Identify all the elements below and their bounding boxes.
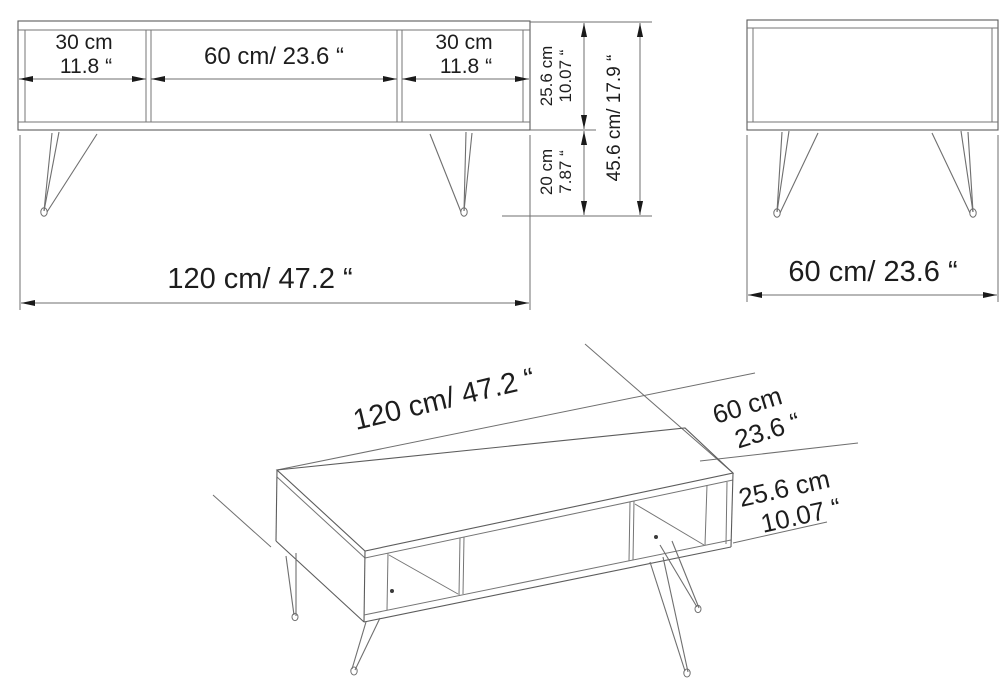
front-right-hairpin-leg xyxy=(430,132,472,216)
diagram-canvas: 30 cm 11.8 “ 60 cm/ 23.6 “ 30 cm 11.8 “ … xyxy=(0,0,1008,684)
iso-depth-label-group: 60 cm 23.6 “ xyxy=(709,378,804,459)
left-compartment-diagonal xyxy=(389,555,458,594)
dim-label-leg-height-in: 7.87 “ xyxy=(556,150,575,194)
side-carcass-outline xyxy=(747,20,998,130)
side-view: 60 cm/ 23.6 “ xyxy=(747,20,998,302)
furniture-dimension-diagram: 30 cm 11.8 “ 60 cm/ 23.6 “ 30 cm 11.8 “ … xyxy=(0,0,1008,684)
side-right-hairpin-leg xyxy=(932,131,976,217)
dim-label-left-section-in: 11.8 “ xyxy=(60,55,112,78)
front-height-dimensions xyxy=(502,22,652,216)
iso-front-left-leg xyxy=(351,618,380,675)
dim-label-right-section-cm: 30 cm xyxy=(435,31,492,54)
dim-label-leg-height-cm: 20 cm xyxy=(537,149,556,195)
dim-label-carcass-height-in: 10.07 “ xyxy=(556,49,575,102)
front-view: 30 cm 11.8 “ 60 cm/ 23.6 “ 30 cm 11.8 “ … xyxy=(18,21,652,310)
dim-label-total-height: 45.6 cm/ 17.9 “ xyxy=(604,55,625,182)
side-left-hairpin-leg xyxy=(774,131,818,217)
dim-label-right-section-in: 11.8 “ xyxy=(440,55,492,78)
dim-label-carcass-height-cm: 25.6 cm xyxy=(537,46,556,106)
iso-front-right-leg xyxy=(650,557,690,677)
right-compartment-diagonal xyxy=(635,504,704,545)
dim-label-middle-section: 60 cm/ 23.6 “ xyxy=(204,43,344,70)
iso-rear-right-leg xyxy=(660,541,701,613)
dim-label-left-section-cm: 30 cm xyxy=(55,31,112,54)
iso-table xyxy=(276,428,733,622)
cam-dot xyxy=(654,535,658,539)
iso-rear-left-leg xyxy=(286,553,298,621)
cam-dot xyxy=(390,589,394,593)
iso-height-label-group: 25.6 cm 10.07 “ xyxy=(736,463,844,543)
dim-label-depth: 60 cm/ 23.6 “ xyxy=(788,256,957,288)
iso-length-label-group: 120 cm/ 47.2 “ xyxy=(350,362,538,436)
dim-label-total-width: 120 cm/ 47.2 “ xyxy=(167,263,352,295)
table-top-face xyxy=(277,428,733,551)
dim-label-iso-length: 120 cm/ 47.2 “ xyxy=(350,362,538,436)
isometric-view: 120 cm/ 47.2 “ 60 cm 23.6 “ 25.6 cm 10.0… xyxy=(213,344,858,677)
front-left-hairpin-leg xyxy=(41,132,97,216)
